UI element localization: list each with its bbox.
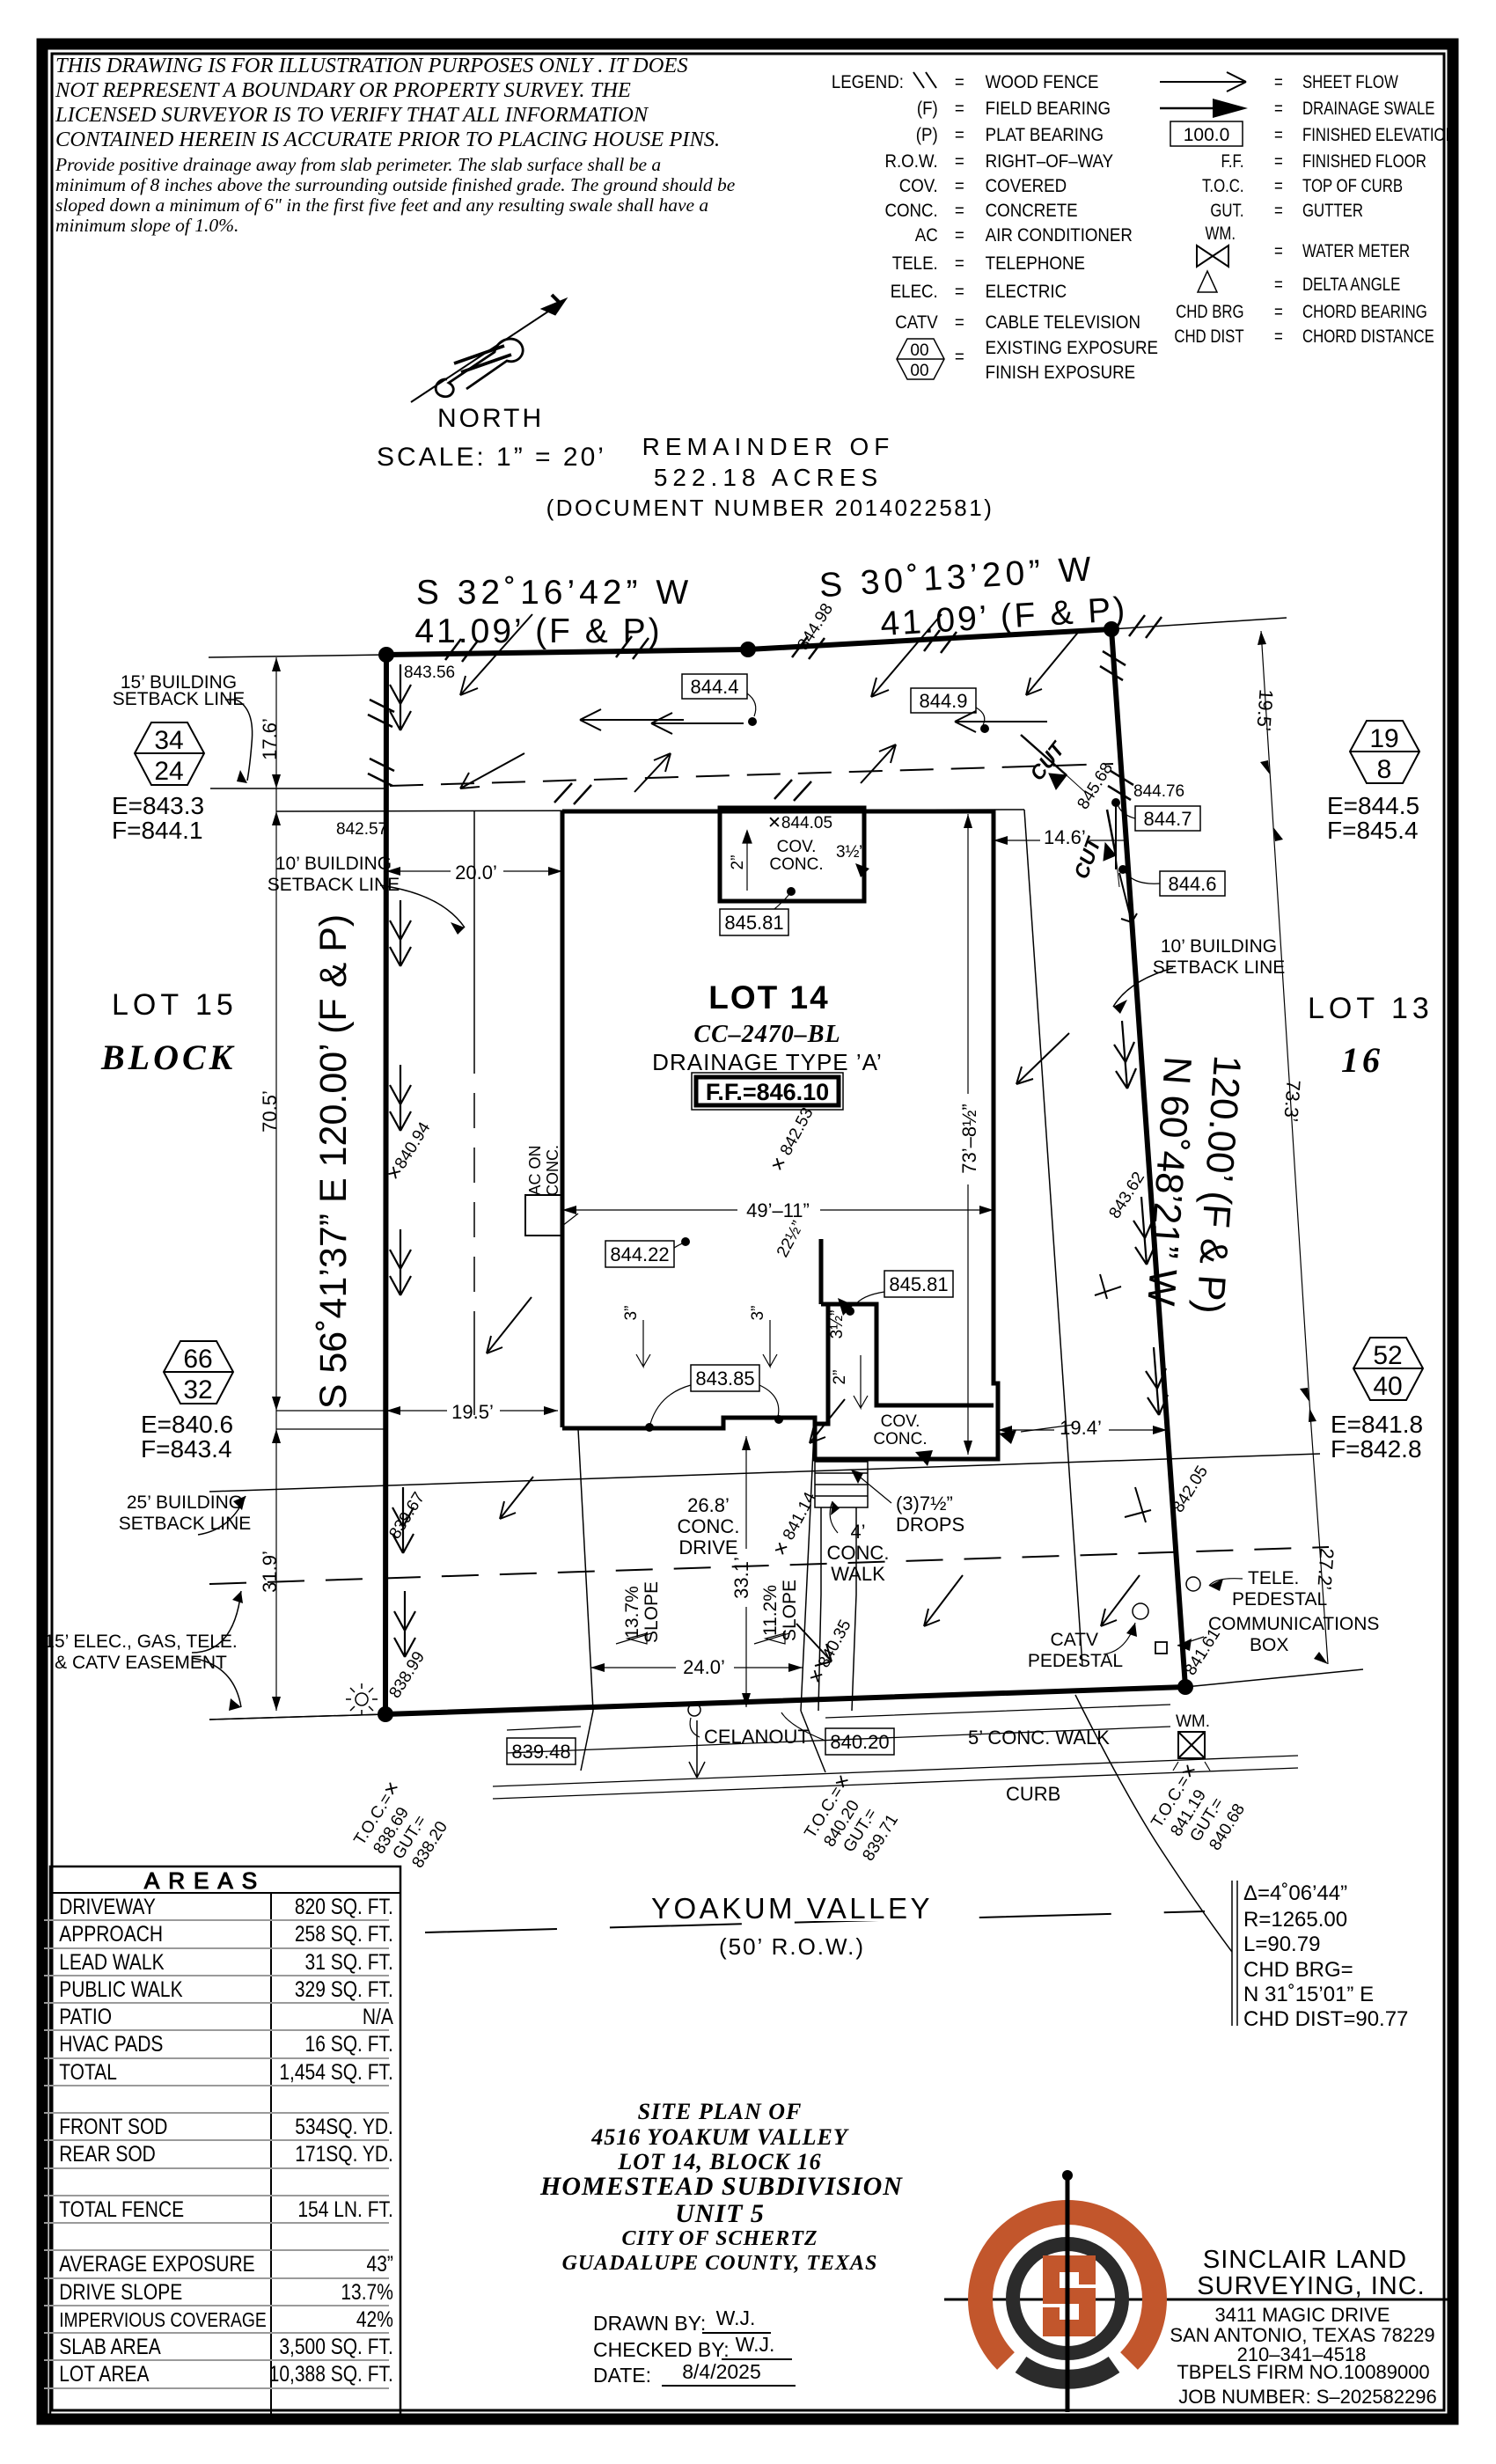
- svg-text:8/4/2025: 8/4/2025: [682, 2360, 761, 2383]
- svg-text:=: =: [955, 176, 964, 196]
- svg-text:WOOD FENCE: WOOD FENCE: [986, 72, 1099, 92]
- svg-text:=: =: [955, 125, 964, 145]
- svg-text:329 SQ. FT.: 329 SQ. FT.: [295, 1976, 393, 2001]
- svg-text:✕ 840.35: ✕ 840.35: [806, 1617, 855, 1687]
- svg-text:minimum of 8 inches above the: minimum of 8 inches above the surroundin…: [55, 174, 736, 195]
- svg-text:PATIO: PATIO: [59, 2004, 112, 2028]
- svg-text:CONC.: CONC.: [678, 1515, 740, 1537]
- svg-text:N/A: N/A: [363, 2004, 394, 2028]
- svg-text:25’ BUILDING: 25’ BUILDING: [127, 1492, 243, 1513]
- svg-text:RIGHT–OF–WAY: RIGHT–OF–WAY: [986, 151, 1113, 172]
- svg-text:WM.: WM.: [1206, 224, 1236, 244]
- svg-text:CONC.: CONC.: [885, 201, 938, 221]
- svg-text:31 SQ. FT.: 31 SQ. FT.: [305, 1949, 393, 1974]
- svg-text:820 SQ. FT.: 820 SQ. FT.: [295, 1894, 393, 1918]
- svg-text:✕ 841.14: ✕ 841.14: [771, 1489, 820, 1559]
- svg-text:CHD DIST: CHD DIST: [1174, 326, 1244, 347]
- svg-text:842.57: 842.57: [336, 820, 387, 839]
- svg-text:=: =: [1274, 302, 1283, 322]
- svg-text:LICENSED SURVEYOR IS TO VERIFY: LICENSED SURVEYOR IS TO VERIFY THAT ALL …: [55, 103, 649, 127]
- svg-text:HVAC PADS: HVAC PADS: [59, 2031, 163, 2056]
- svg-text:E=841.8: E=841.8: [1331, 1411, 1423, 1438]
- svg-text:=: =: [955, 72, 964, 92]
- svg-text:UNIT 5: UNIT 5: [675, 2199, 765, 2228]
- svg-text:4516 YOAKUM VALLEY: 4516 YOAKUM VALLEY: [590, 2124, 849, 2150]
- svg-text:=: =: [1274, 275, 1283, 295]
- svg-text:SINCLAIR LAND: SINCLAIR LAND: [1203, 2246, 1407, 2274]
- svg-text:(F): (F): [917, 99, 938, 119]
- svg-text:FRONT SOD: FRONT SOD: [59, 2114, 167, 2138]
- svg-text:842.05: 842.05: [1169, 1463, 1212, 1515]
- svg-text:TOTAL: TOTAL: [59, 2059, 117, 2084]
- svg-text:L=90.79: L=90.79: [1243, 1932, 1320, 1956]
- svg-text:Δ=4˚06’44”: Δ=4˚06’44”: [1243, 1881, 1347, 1905]
- svg-text:THIS DRAWING IS FOR ILLUSTRATI: THIS DRAWING IS FOR ILLUSTRATION PURPOSE…: [55, 54, 688, 77]
- svg-text:LOT 14, BLOCK 16: LOT 14, BLOCK 16: [617, 2149, 821, 2174]
- svg-text:00: 00: [910, 341, 928, 360]
- svg-text:CONC.: CONC.: [827, 1542, 890, 1564]
- svg-text:31.9’: 31.9’: [259, 1551, 281, 1593]
- svg-text:COV.: COV.: [777, 838, 817, 856]
- svg-text:SETBACK LINE: SETBACK LINE: [268, 875, 400, 895]
- svg-text:DRIVEWAY: DRIVEWAY: [59, 1894, 156, 1918]
- svg-text:LOT 14: LOT 14: [708, 979, 829, 1016]
- svg-text:24.0’: 24.0’: [683, 1656, 725, 1678]
- svg-text:=: =: [955, 151, 964, 172]
- svg-text:844.4: 844.4: [690, 676, 738, 698]
- svg-text:42%: 42%: [356, 2306, 393, 2331]
- svg-text:20.0’: 20.0’: [455, 862, 497, 884]
- svg-text:43”: 43”: [367, 2251, 393, 2276]
- svg-text:✕844.05: ✕844.05: [767, 814, 832, 832]
- svg-text:sloped down a minimum of 6" in: sloped down a minimum of 6" in the first…: [55, 194, 708, 216]
- svg-text:CATV: CATV: [1051, 1630, 1098, 1650]
- svg-text:DROPS: DROPS: [896, 1514, 964, 1536]
- svg-text:844.76: 844.76: [1133, 782, 1184, 801]
- svg-text:PUBLIC WALK: PUBLIC WALK: [59, 1976, 183, 2001]
- svg-text:HOMESTEAD SUBDIVISION: HOMESTEAD SUBDIVISION: [539, 2172, 903, 2201]
- svg-text:3”: 3”: [622, 1306, 641, 1321]
- svg-text:Provide positive drainage away: Provide positive drainage away from slab…: [55, 154, 661, 175]
- svg-text:SITE PLAN OF: SITE PLAN OF: [638, 2099, 803, 2124]
- svg-text:16 SQ. FT.: 16 SQ. FT.: [305, 2031, 393, 2056]
- svg-text:171SQ. YD.: 171SQ. YD.: [295, 2141, 393, 2166]
- svg-text:DATE:: DATE:: [593, 2364, 651, 2387]
- svg-text:843.85: 843.85: [695, 1368, 754, 1390]
- svg-text:GUADALUPE COUNTY, TEXAS: GUADALUPE COUNTY, TEXAS: [562, 2252, 878, 2275]
- svg-text:CHORD BEARING: CHORD BEARING: [1302, 302, 1427, 322]
- svg-text:258 SQ. FT.: 258 SQ. FT.: [295, 1921, 393, 1946]
- svg-text:CHD DIST=90.77: CHD DIST=90.77: [1243, 2007, 1408, 2031]
- svg-text:3½”: 3½”: [836, 843, 865, 862]
- svg-text:DRAWN BY:: DRAWN BY:: [593, 2312, 706, 2335]
- svg-text:=: =: [955, 282, 964, 302]
- svg-text:844.22: 844.22: [610, 1243, 669, 1265]
- svg-text:AC ON: AC ON: [526, 1145, 544, 1195]
- svg-text:AC: AC: [915, 225, 938, 246]
- svg-text:BOX: BOX: [1250, 1635, 1288, 1655]
- svg-text:CONTAINED HEREIN IS ACCURATE P: CONTAINED HEREIN IS ACCURATE PRIOR TO PL…: [55, 128, 720, 151]
- svg-text:✕ 842.53: ✕ 842.53: [768, 1104, 818, 1175]
- svg-text:CHECKED BY:: CHECKED BY:: [593, 2338, 730, 2361]
- svg-text:DRAINAGE SWALE: DRAINAGE SWALE: [1302, 99, 1434, 119]
- svg-text:WATER METER: WATER METER: [1302, 241, 1410, 261]
- svg-text:22½”: 22½”: [774, 1218, 808, 1260]
- svg-text:BLOCK: BLOCK: [100, 1038, 236, 1077]
- svg-text:10’ BUILDING: 10’ BUILDING: [1161, 936, 1277, 957]
- svg-text:16: 16: [1341, 1040, 1383, 1080]
- svg-text:=: =: [955, 253, 964, 274]
- svg-text:=: =: [1274, 326, 1283, 347]
- svg-text:DELTA ANGLE: DELTA ANGLE: [1302, 275, 1400, 295]
- svg-text:10,388 SQ. FT.: 10,388 SQ. FT.: [269, 2361, 393, 2386]
- svg-text:49’–11”: 49’–11”: [746, 1199, 810, 1221]
- svg-text:34: 34: [154, 726, 183, 755]
- svg-text:(DOCUMENT NUMBER 2014022581): (DOCUMENT NUMBER 2014022581): [546, 495, 994, 521]
- svg-text:E=844.5: E=844.5: [1327, 792, 1419, 819]
- svg-text:2”: 2”: [729, 855, 747, 870]
- svg-text:WALK: WALK: [831, 1563, 885, 1585]
- svg-text:33.1’: 33.1’: [730, 1557, 752, 1599]
- svg-text:839.67: 839.67: [385, 1489, 429, 1542]
- svg-text:COVERED: COVERED: [986, 176, 1067, 196]
- svg-text:=: =: [955, 312, 964, 333]
- svg-text:(3)7½”: (3)7½”: [896, 1492, 953, 1514]
- svg-text:844.6: 844.6: [1168, 873, 1216, 895]
- svg-text:1,454 SQ. FT.: 1,454 SQ. FT.: [279, 2059, 393, 2084]
- svg-text:CURB: CURB: [1006, 1783, 1060, 1805]
- svg-text:(P): (P): [916, 125, 938, 145]
- svg-text:COV.: COV.: [899, 176, 938, 196]
- svg-text:GUT.: GUT.: [1210, 201, 1243, 221]
- svg-text:845.81: 845.81: [724, 912, 783, 934]
- svg-text:SETBACK LINE: SETBACK LINE: [113, 689, 246, 709]
- svg-text:17.6’: 17.6’: [259, 718, 281, 760]
- svg-text:CHD BRG=: CHD BRG=: [1243, 1958, 1353, 1982]
- svg-text:WM.: WM.: [1176, 1712, 1210, 1731]
- svg-text:3”: 3”: [749, 1306, 767, 1321]
- svg-text:PEDESTAL: PEDESTAL: [1232, 1589, 1327, 1610]
- svg-text:COV.: COV.: [881, 1412, 920, 1431]
- svg-text:E=843.3: E=843.3: [112, 792, 204, 819]
- svg-text:S 56˚41’37” E 120.00’ (F & P): S 56˚41’37” E 120.00’ (F & P): [312, 914, 355, 1409]
- svg-text:TOP OF CURB: TOP OF CURB: [1302, 176, 1403, 196]
- svg-text:00: 00: [910, 362, 928, 380]
- svg-text:F.F.: F.F.: [1221, 151, 1243, 172]
- svg-text:CITY OF SCHERTZ: CITY OF SCHERTZ: [621, 2227, 818, 2250]
- svg-text:=: =: [1274, 201, 1283, 221]
- svg-text:R=1265.00: R=1265.00: [1243, 1908, 1347, 1932]
- svg-text:24: 24: [154, 757, 183, 786]
- svg-text:minimum slope of 1.0%.: minimum slope of 1.0%.: [55, 215, 238, 236]
- svg-text:NOT REPRESENT A BOUNDARY OR PR: NOT REPRESENT A BOUNDARY OR PROPERTY SUR…: [55, 78, 631, 102]
- svg-text:=: =: [1274, 241, 1283, 261]
- svg-text:JOB NUMBER: S–202582296: JOB NUMBER: S–202582296: [1178, 2386, 1437, 2408]
- svg-text:F=845.4: F=845.4: [1327, 817, 1419, 844]
- svg-text:T.O.C.: T.O.C.: [1202, 176, 1244, 196]
- svg-text:=: =: [1274, 99, 1283, 119]
- svg-text:GUTTER: GUTTER: [1302, 201, 1363, 221]
- svg-text:=: =: [1274, 151, 1283, 172]
- svg-text:R.O.W.: R.O.W.: [885, 151, 938, 172]
- svg-text:26.8’: 26.8’: [687, 1494, 730, 1516]
- svg-text:PLAT BEARING: PLAT BEARING: [986, 125, 1104, 145]
- svg-text:844.9: 844.9: [919, 690, 967, 712]
- svg-text:TELE.: TELE.: [1248, 1568, 1299, 1588]
- svg-text:19.5’: 19.5’: [1252, 688, 1277, 731]
- svg-text:5’ CONC. WALK: 5’ CONC. WALK: [968, 1727, 1110, 1749]
- svg-text:ELECTRIC: ELECTRIC: [986, 282, 1067, 302]
- svg-text:13.7%: 13.7%: [341, 2279, 393, 2304]
- svg-text:SLAB AREA: SLAB AREA: [59, 2334, 161, 2358]
- svg-text:LOT 15: LOT 15: [112, 988, 238, 1022]
- svg-text:19: 19: [1369, 724, 1398, 753]
- svg-text:70.5’: 70.5’: [259, 1090, 281, 1133]
- svg-text:19.4’: 19.4’: [1060, 1417, 1102, 1439]
- svg-text:NORTH: NORTH: [437, 404, 544, 433]
- svg-text:PEDESTAL: PEDESTAL: [1028, 1651, 1123, 1671]
- svg-text:N 31˚15’01” E: N 31˚15’01” E: [1243, 1983, 1374, 2006]
- svg-text:FIELD BEARING: FIELD BEARING: [986, 99, 1111, 119]
- svg-text:=: =: [1274, 125, 1283, 145]
- svg-text:✕840.94: ✕840.94: [384, 1118, 434, 1184]
- svg-text:REAR SOD: REAR SOD: [59, 2141, 156, 2166]
- svg-text:CHORD DISTANCE: CHORD DISTANCE: [1302, 326, 1434, 347]
- svg-text:CONC.: CONC.: [544, 1145, 561, 1196]
- svg-text:DRIVE SLOPE: DRIVE SLOPE: [59, 2279, 182, 2304]
- svg-text:SURVEYING, INC.: SURVEYING, INC.: [1197, 2272, 1425, 2300]
- svg-text:154 LN. FT.: 154 LN. FT.: [297, 2196, 393, 2221]
- svg-text:& CATV EASEMENT: & CATV EASEMENT: [55, 1653, 227, 1673]
- svg-text:FINISHED ELEVATION: FINISHED ELEVATION: [1302, 125, 1456, 145]
- svg-text:4’: 4’: [850, 1521, 865, 1543]
- svg-text:YOAKUM VALLEY: YOAKUM VALLEY: [651, 1892, 933, 1925]
- svg-text:=: =: [955, 225, 964, 246]
- svg-text:41.09’ (F & P): 41.09’ (F & P): [414, 612, 662, 650]
- svg-text:13.7%: 13.7%: [622, 1586, 642, 1639]
- svg-text:CABLE TELEVISION: CABLE TELEVISION: [986, 312, 1140, 333]
- svg-text:DRAINAGE TYPE ’A’: DRAINAGE TYPE ’A’: [652, 1049, 883, 1075]
- svg-text:CATV: CATV: [895, 312, 938, 333]
- svg-text:15’ ELEC., GAS, TELE.: 15’ ELEC., GAS, TELE.: [44, 1632, 237, 1652]
- svg-text:3,500 SQ. FT.: 3,500 SQ. FT.: [279, 2334, 393, 2358]
- svg-text:11.2%: 11.2%: [760, 1585, 781, 1636]
- svg-text:=: =: [1274, 72, 1283, 92]
- svg-text:3411 MAGIC DRIVE: 3411 MAGIC DRIVE: [1215, 2304, 1390, 2326]
- svg-text:ELEC.: ELEC.: [891, 282, 938, 302]
- svg-text:40: 40: [1373, 1372, 1402, 1401]
- svg-text:F.F.=846.10: F.F.=846.10: [706, 1079, 829, 1105]
- svg-text:F=843.4: F=843.4: [141, 1435, 232, 1463]
- svg-text:E=840.6: E=840.6: [141, 1411, 233, 1438]
- svg-text:FINISH EXPOSURE: FINISH EXPOSURE: [986, 363, 1135, 383]
- svg-text:CONC.: CONC.: [873, 1430, 927, 1448]
- svg-text:TOTAL FENCE: TOTAL FENCE: [59, 2196, 184, 2221]
- svg-text:840.20: 840.20: [830, 1731, 889, 1753]
- svg-text:TELE.: TELE.: [892, 253, 938, 274]
- svg-text:(50’ R.O.W.): (50’ R.O.W.): [719, 1933, 865, 1960]
- svg-text:AVERAGE EXPOSURE: AVERAGE EXPOSURE: [59, 2251, 254, 2276]
- svg-text:66: 66: [183, 1345, 212, 1374]
- svg-text:=: =: [1274, 176, 1283, 196]
- svg-text:EXISTING EXPOSURE: EXISTING EXPOSURE: [986, 338, 1158, 358]
- svg-text:AREAS: AREAS: [144, 1867, 266, 1894]
- svg-text:=: =: [955, 99, 964, 119]
- svg-text:73’–8½”: 73’–8½”: [958, 1104, 980, 1174]
- svg-text:19.5’: 19.5’: [451, 1401, 494, 1423]
- svg-text:32: 32: [183, 1375, 212, 1404]
- svg-text:IMPERVIOUS COVERAGE: IMPERVIOUS COVERAGE: [59, 2310, 267, 2332]
- svg-text:FINISHED FLOOR: FINISHED FLOOR: [1302, 151, 1426, 172]
- svg-text:LEAD WALK: LEAD WALK: [59, 1949, 165, 1974]
- svg-text:844.7: 844.7: [1143, 808, 1192, 830]
- svg-text:S 32˚16’42” W: S 32˚16’42” W: [416, 574, 693, 612]
- svg-text:SHEET FLOW: SHEET FLOW: [1302, 72, 1398, 92]
- svg-text:COMMUNICATIONS: COMMUNICATIONS: [1208, 1614, 1379, 1634]
- svg-text:CC–2470–BL: CC–2470–BL: [693, 1021, 840, 1048]
- svg-text:843.56: 843.56: [404, 664, 455, 682]
- svg-text:DRIVE: DRIVE: [678, 1536, 737, 1558]
- svg-text:LEGEND:: LEGEND:: [832, 72, 904, 92]
- svg-text:522.18 ACRES: 522.18 ACRES: [654, 464, 883, 491]
- svg-text:TBPELS FIRM NO.10089000: TBPELS FIRM NO.10089000: [1177, 2361, 1429, 2383]
- svg-text:534SQ. YD.: 534SQ. YD.: [295, 2114, 393, 2138]
- svg-text:CHD BRG: CHD BRG: [1176, 302, 1243, 322]
- svg-text:CONCRETE: CONCRETE: [986, 201, 1078, 221]
- svg-text:SCALE: 1” = 20’: SCALE: 1” = 20’: [377, 443, 606, 472]
- svg-text:845.81: 845.81: [889, 1273, 948, 1295]
- svg-text:8: 8: [1377, 755, 1392, 784]
- svg-text:F=844.1: F=844.1: [112, 817, 203, 844]
- svg-text:52: 52: [1373, 1341, 1402, 1370]
- svg-text:10’ BUILDING: 10’ BUILDING: [275, 854, 392, 874]
- svg-text:TELEPHONE: TELEPHONE: [986, 253, 1085, 274]
- svg-text:F=842.8: F=842.8: [1331, 1435, 1422, 1463]
- svg-text:LOT AREA: LOT AREA: [59, 2361, 150, 2386]
- svg-text:27.2’: 27.2’: [1313, 1547, 1338, 1590]
- svg-text:REMAINDER OF: REMAINDER OF: [642, 433, 895, 460]
- svg-text:SLOPE: SLOPE: [780, 1580, 800, 1641]
- svg-text:CONC.: CONC.: [769, 855, 823, 874]
- svg-text:APPROACH: APPROACH: [59, 1921, 163, 1946]
- svg-text:=: =: [955, 347, 964, 367]
- svg-text:2”: 2”: [831, 1370, 849, 1385]
- svg-text:100.0: 100.0: [1184, 125, 1230, 145]
- svg-text:SETBACK LINE: SETBACK LINE: [119, 1514, 252, 1534]
- svg-text:W.J.: W.J.: [736, 2333, 775, 2356]
- svg-text:73.3’: 73.3’: [1280, 1079, 1304, 1122]
- svg-text:W.J.: W.J.: [716, 2306, 756, 2329]
- svg-text:N 60˚48’21” W: N 60˚48’21” W: [1139, 1055, 1199, 1308]
- svg-text:=: =: [955, 201, 964, 221]
- svg-text:AIR CONDITIONER: AIR CONDITIONER: [986, 225, 1133, 246]
- svg-text:LOT 13: LOT 13: [1308, 992, 1434, 1025]
- svg-text:838.99: 838.99: [385, 1648, 429, 1701]
